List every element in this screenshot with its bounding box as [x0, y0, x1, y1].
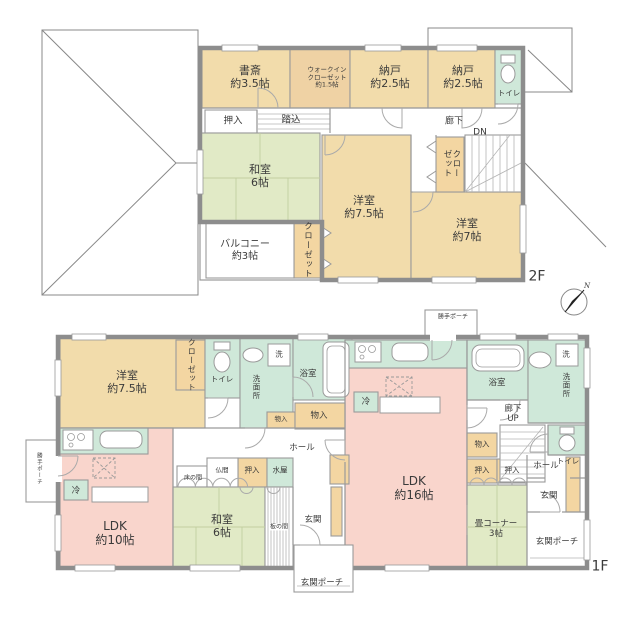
toilet-fixture-2f [501, 55, 515, 83]
compass [561, 289, 587, 315]
floor1-plan [26, 310, 590, 592]
entrance-porch-center [294, 545, 353, 592]
back-porch-left [26, 440, 60, 502]
floorplan-drawing [0, 0, 638, 640]
floor-plan-canvas: 書斎 約3.5帖 ウォークイン クローゼット 約1.5帖 納戸 約2.5帖 納戸… [0, 0, 638, 640]
floor2-plan [197, 45, 526, 283]
stairs-1f [500, 425, 545, 482]
back-porch-top [425, 310, 477, 338]
